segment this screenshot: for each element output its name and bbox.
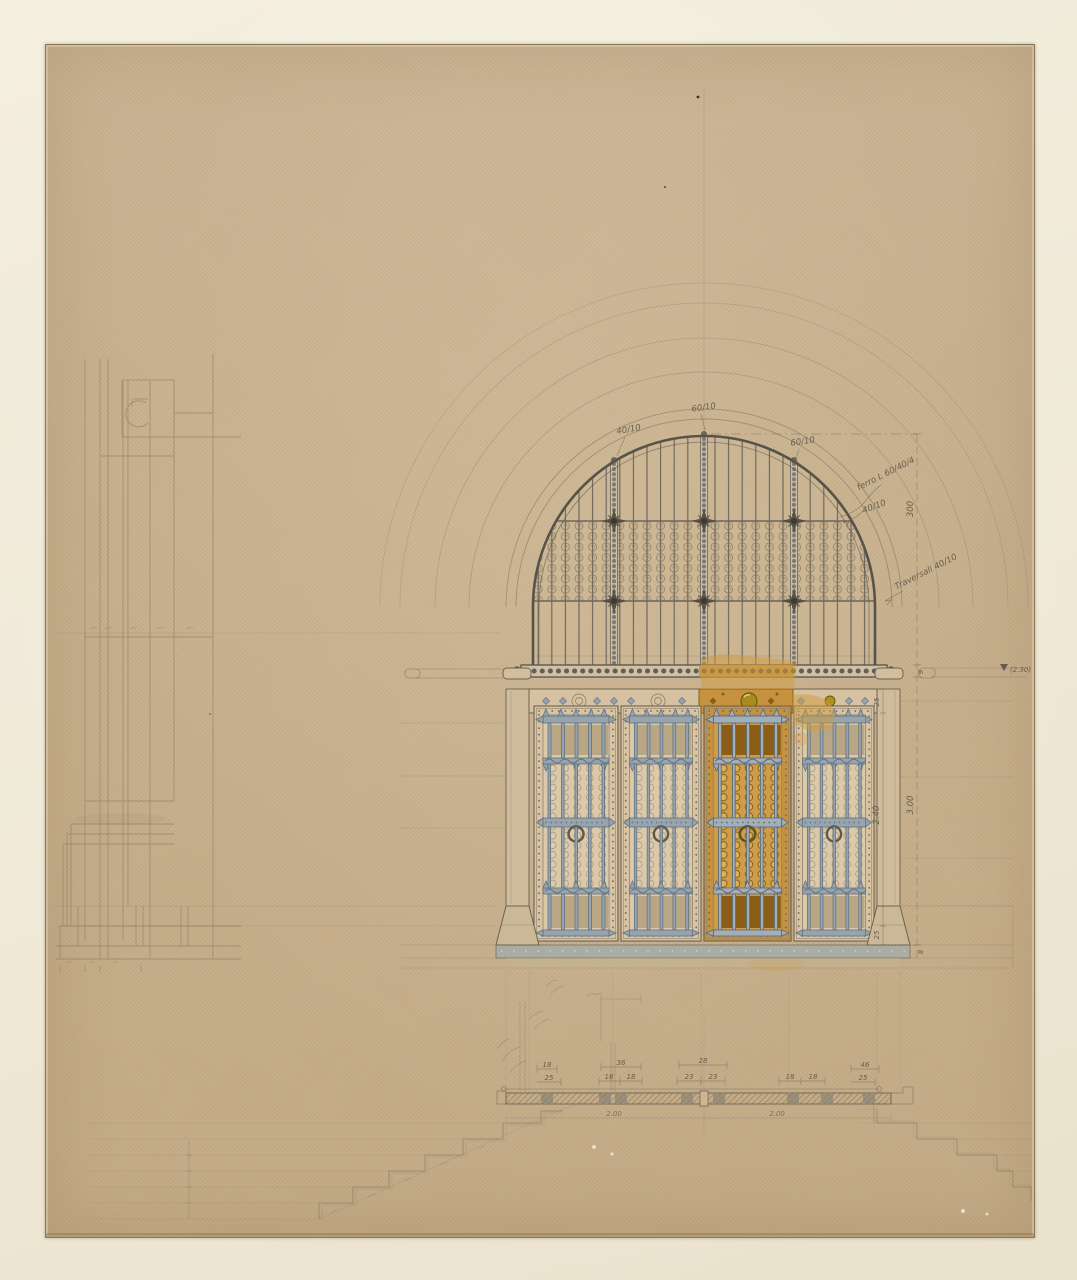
architectural-drawing: 60/10 40/10 60/10 ferro L 60/40/4 40/10 … xyxy=(46,45,1034,1237)
note-arch-right: 60/10 xyxy=(790,435,816,448)
tick-25-top: 25 xyxy=(873,697,881,706)
dim-25l: 25 xyxy=(545,1074,554,1082)
gilded-door-leaf xyxy=(704,706,791,941)
door-leaf-1 xyxy=(534,706,618,941)
pilaster-study xyxy=(56,353,241,972)
tick-25-bottom: 25 xyxy=(873,930,881,939)
dim-23a: 23 xyxy=(685,1073,694,1081)
dim-300: 300 xyxy=(906,501,916,517)
dim-200-right: 2.00 xyxy=(769,1110,785,1118)
base-block-left xyxy=(496,906,539,945)
tick-9: 9 xyxy=(917,669,925,674)
dim-18d: 18 xyxy=(809,1073,818,1081)
dim-18b: 18 xyxy=(627,1073,636,1081)
dim-23b: 23 xyxy=(709,1073,718,1081)
steps-right xyxy=(704,1011,1032,1201)
steps-left xyxy=(89,1093,611,1221)
dim-18a: 18 xyxy=(605,1073,614,1081)
pencil-scribbles xyxy=(497,980,602,1073)
note-iron-frame: ferro L 60/40/4 xyxy=(856,455,917,493)
note-arch-left: 40/10 xyxy=(616,423,642,437)
dim-46: 28 xyxy=(699,1057,708,1065)
arched-grille xyxy=(513,431,895,677)
plan-section: 18 36 28 46 25 18 18 23 23 18 18 25 2.00… xyxy=(497,971,913,1122)
plan-dimension-labels: 18 36 28 46 25 18 18 23 23 18 18 25 2.00… xyxy=(543,1057,870,1118)
door-leaf-2 xyxy=(621,706,701,941)
dim-28: 46 xyxy=(861,1061,870,1069)
level-marker-icon xyxy=(1000,664,1008,671)
tick-8: 8 xyxy=(917,949,925,954)
dim-200-left: 2.00 xyxy=(606,1110,622,1118)
dim-18: 18 xyxy=(543,1061,552,1069)
note-arch-top: 60/10 xyxy=(691,401,717,414)
dim-18c: 18 xyxy=(786,1073,795,1081)
drawing-sheet: 60/10 40/10 60/10 ferro L 60/40/4 40/10 … xyxy=(45,44,1035,1238)
matted-drawing-photo: 60/10 40/10 60/10 ferro L 60/40/4 40/10 … xyxy=(0,0,1077,1280)
dim-240: 2.40 xyxy=(872,806,882,825)
note-transom: Traversali 40/10 xyxy=(893,552,959,592)
dim-36: 36 xyxy=(617,1059,626,1067)
level-value: (2.30) xyxy=(1010,666,1031,674)
dim-25r: 25 xyxy=(859,1074,868,1082)
dim-300b: 3.00 xyxy=(906,796,916,815)
